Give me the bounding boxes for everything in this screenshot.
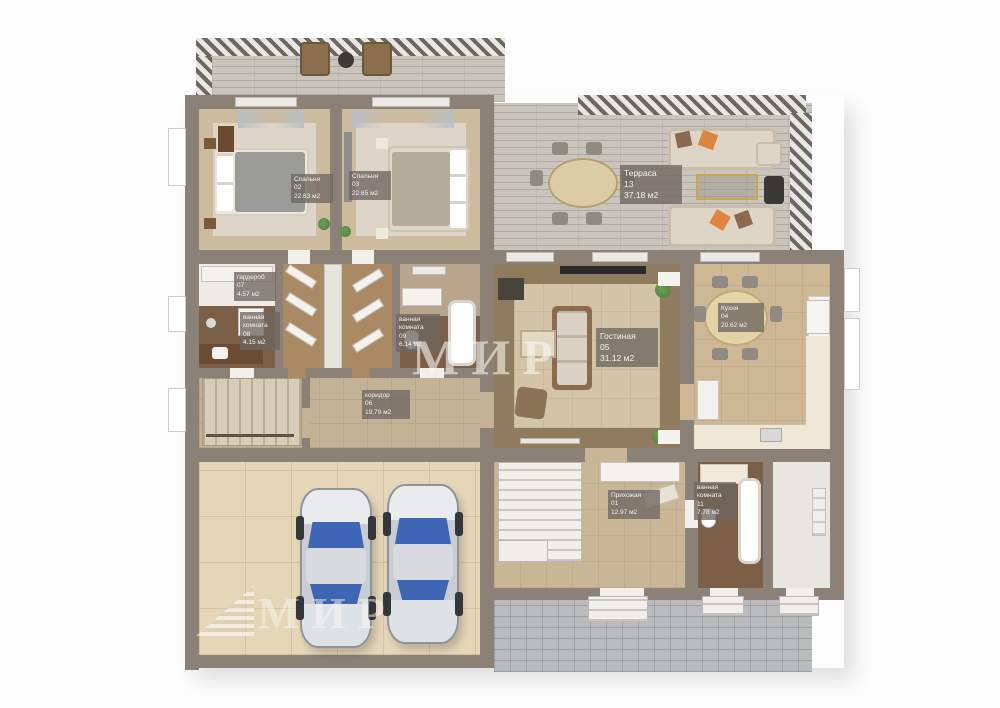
terrace-grill (764, 176, 784, 204)
door-hall-living (585, 448, 627, 462)
room-area: 20.62 м2 (721, 322, 761, 330)
room-label-bath-left: ванная комната 08 4.15 м2 (240, 312, 280, 350)
staircase-landing (498, 540, 548, 562)
room-label-terrace: Терраса 13 37.18 м2 (620, 165, 682, 204)
room-area: 31.12 м2 (600, 353, 654, 364)
terrace-chair (552, 212, 568, 225)
terrace-dining-table (548, 158, 618, 208)
wall-garage-top (185, 448, 494, 462)
curtain (352, 110, 384, 128)
room-number: 02 (294, 184, 330, 192)
terrace-railing-right (790, 113, 812, 253)
wall-garage-bottom (185, 655, 494, 668)
door-bedroom-left (288, 250, 310, 264)
terrace-railing-top (578, 95, 806, 115)
porch-steps-pantry (779, 596, 819, 616)
wall-bottom-center (494, 448, 844, 462)
window-sill-living (658, 272, 680, 286)
staircase-railing (206, 434, 294, 437)
car-roof (306, 548, 366, 584)
window-living-terrace-2 (592, 252, 648, 262)
car-trunk (389, 600, 457, 644)
room-area: 4.15 м2 (243, 339, 277, 347)
car-right (387, 484, 459, 644)
deck-side-table (338, 52, 354, 68)
closet-middle-cabinet (324, 264, 342, 370)
deck-armchair (362, 42, 392, 76)
window-left-bath (168, 296, 186, 332)
window-bath-main (412, 266, 446, 275)
hall-closet (600, 462, 680, 482)
bathtub (738, 478, 761, 564)
room-label-bath-lower: ванная комната 11 7.78 м2 (694, 482, 736, 520)
dining-chair (742, 348, 758, 360)
room-area: 12.97 м2 (611, 509, 657, 517)
window-sill-living (658, 430, 680, 444)
room-name: гардероб (237, 274, 273, 282)
armchair (514, 386, 548, 420)
wardrobe-cabinet (218, 126, 234, 152)
kitchen-sink (760, 428, 782, 442)
room-name: Спальня (294, 176, 330, 184)
wall-bath-pantry (763, 462, 773, 588)
curtain (274, 110, 304, 128)
room-label-bedroom-right: Спальня 03 22.65 м2 (349, 171, 391, 200)
brown-pillow (675, 131, 693, 149)
room-name: Терраса (624, 168, 678, 179)
potted-plant (318, 218, 330, 230)
room-label-kitchen: Кухня 04 20.62 м2 (718, 303, 764, 332)
room-number: 07 (237, 282, 273, 290)
room-area: 4.57 м2 (237, 291, 273, 299)
door-living-kitchen (680, 384, 694, 420)
window-top-bedroom-left (235, 97, 297, 107)
shower-head (206, 318, 216, 328)
door-stairwell (302, 408, 310, 438)
room-area: 19.79 м2 (365, 409, 407, 417)
room-label-living: Гостиная 05 31.12 м2 (596, 328, 658, 367)
curtain (420, 110, 454, 128)
car-hood (389, 486, 457, 520)
floorplan-image: Спальня 02 22.63 м2 Спальня 03 22.65 м2 … (0, 0, 1000, 708)
window-living-terrace-1 (506, 252, 554, 262)
bed-right-pillows (450, 150, 466, 228)
dining-chair (770, 306, 782, 322)
room-label-bedroom-left: Спальня 02 22.63 м2 (291, 174, 333, 203)
tv-unit (560, 266, 646, 274)
nightstand (204, 218, 216, 229)
room-name: ванная комната (697, 484, 733, 501)
terrace-chair (530, 170, 543, 186)
door-corridor-living (480, 392, 494, 428)
nightstand (376, 228, 388, 239)
room-number: 05 (600, 342, 654, 353)
curtain (238, 110, 270, 128)
room-name: Спальня (352, 173, 388, 181)
nightstand (204, 138, 216, 149)
window-bay-right-1 (844, 268, 860, 312)
wall-outer-left (185, 95, 199, 670)
car-wheel (455, 592, 463, 616)
room-area: 7.78 м2 (697, 509, 733, 517)
dining-chair (694, 306, 706, 322)
car-wheel (455, 512, 463, 536)
fridge (806, 300, 830, 334)
car-windshield (308, 522, 364, 548)
window-top-bedroom-right (372, 97, 450, 107)
dining-chair (712, 348, 728, 360)
terrace-chair (586, 212, 602, 225)
porch-steps-front (588, 596, 648, 622)
car-wheel (383, 512, 391, 536)
room-area: 22.65 м2 (352, 190, 388, 198)
bed-left-pillows (217, 153, 233, 211)
wall-living-kitchen (680, 264, 694, 448)
room-name: Прихожая (611, 492, 657, 500)
door-bedroom-right (352, 250, 374, 264)
kitchen-counter-right (806, 336, 830, 426)
watermark-center: МИР (412, 328, 565, 386)
room-number: 06 (365, 400, 407, 408)
shoe-shelf-decor (520, 438, 580, 444)
deck-armchair (300, 42, 330, 76)
room-number: 13 (624, 179, 678, 190)
window-left-stairs (168, 388, 186, 432)
car-wheel (296, 516, 304, 540)
bath-left-sink (212, 347, 228, 359)
patio-pavers (494, 598, 812, 672)
terrace-armchair (756, 142, 782, 166)
car-roof (393, 544, 453, 580)
terrace-coffee-table (696, 174, 758, 200)
car-windshield (395, 518, 451, 544)
nightstand (376, 138, 388, 149)
room-label-corridor: коридор 06 19.79 м2 (362, 390, 410, 419)
porch-steps-bath (702, 596, 744, 616)
room-name: коридор (365, 392, 407, 400)
side-table-dark (498, 278, 524, 300)
room-name: Кухня (721, 305, 761, 313)
room-number: 01 (611, 500, 657, 508)
potted-plant (340, 226, 351, 237)
tall-cabinet (697, 380, 719, 420)
room-area: 22.63 м2 (294, 193, 330, 201)
room-label-entrance: Прихожая 01 12.97 м2 (608, 490, 660, 519)
door-closet-right (352, 368, 370, 378)
window-left-bedroom (168, 128, 186, 186)
room-number: 08 (243, 331, 277, 339)
terrace-chair (586, 142, 602, 155)
roof-railing-left-wedge (196, 56, 212, 98)
watermark-bottom-left: МИР (258, 588, 397, 639)
room-number: 03 (352, 181, 388, 189)
room-name: ванная комната (243, 314, 277, 331)
room-number: 11 (697, 501, 733, 509)
door-closet-left (288, 368, 306, 378)
room-number: 04 (721, 313, 761, 321)
door-wardrobe (230, 368, 254, 378)
pantry-niche-shelves (812, 488, 826, 536)
room-name: Гостиная (600, 331, 654, 342)
bed-right-blanket (392, 152, 450, 226)
dining-chair (712, 276, 728, 288)
car-rear-window (397, 580, 449, 600)
car-hood (302, 490, 370, 524)
window-kitchen-terrace (700, 252, 760, 262)
room-label-wardrobe: гардероб 07 4.57 м2 (234, 272, 276, 301)
window-bay-right-2 (844, 318, 860, 390)
room-area: 37.18 м2 (624, 190, 678, 201)
bath-vanity (402, 288, 442, 306)
dining-chair (742, 276, 758, 288)
car-wheel (368, 516, 376, 540)
terrace-chair (552, 142, 568, 155)
wall-outer-right (830, 250, 844, 600)
